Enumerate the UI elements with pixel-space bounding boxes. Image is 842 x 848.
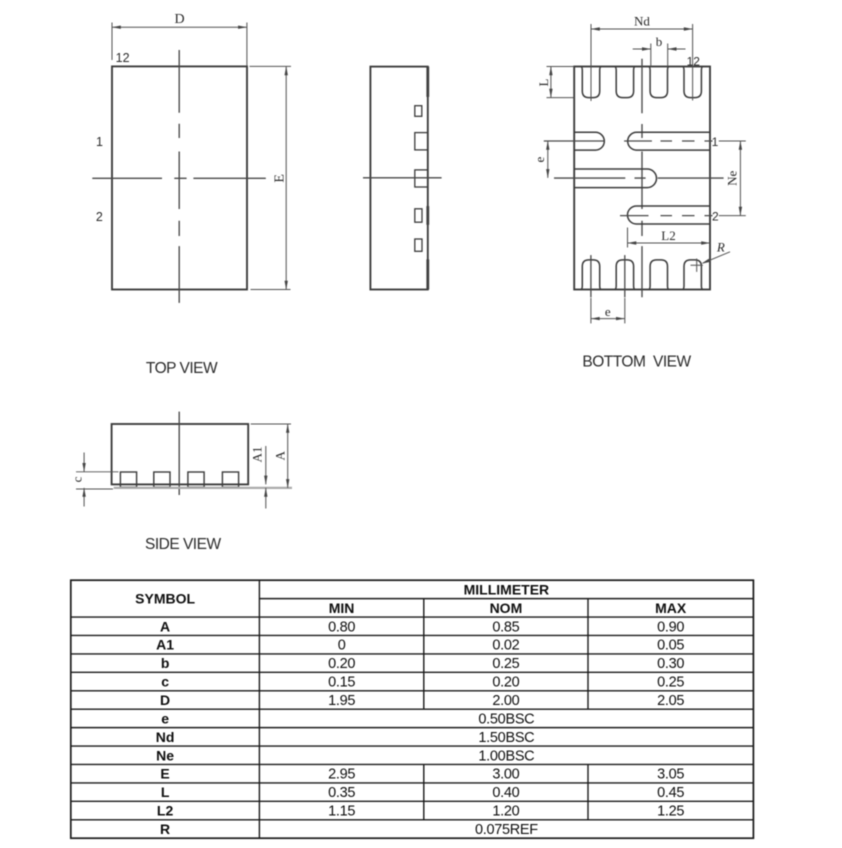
- svg-text:0.45: 0.45: [657, 785, 684, 801]
- svg-text:0.85: 0.85: [492, 619, 519, 635]
- svg-text:1.50BSC: 1.50BSC: [478, 730, 534, 746]
- svg-text:A1: A1: [250, 447, 265, 463]
- svg-text:A: A: [160, 618, 170, 634]
- svg-text:A1: A1: [156, 637, 174, 653]
- svg-text:0.50BSC: 0.50BSC: [478, 711, 534, 727]
- svg-text:1.25: 1.25: [657, 804, 684, 820]
- svg-text:0.20: 0.20: [492, 675, 519, 691]
- svg-text:0: 0: [338, 638, 346, 654]
- svg-text:0.075REF: 0.075REF: [475, 822, 538, 838]
- svg-text:Nd: Nd: [634, 13, 650, 28]
- svg-text:e: e: [161, 710, 169, 726]
- svg-text:1.00BSC: 1.00BSC: [478, 748, 534, 764]
- svg-text:3.05: 3.05: [657, 767, 684, 783]
- svg-text:MILLIMETER: MILLIMETER: [464, 581, 550, 597]
- svg-text:TOP VIEW: TOP VIEW: [146, 360, 218, 377]
- svg-text:2: 2: [96, 210, 103, 224]
- svg-text:Nd: Nd: [156, 729, 175, 745]
- svg-text:0.35: 0.35: [328, 785, 355, 801]
- svg-text:SYMBOL: SYMBOL: [135, 591, 195, 607]
- svg-text:0.25: 0.25: [657, 675, 684, 691]
- svg-text:2: 2: [712, 209, 719, 223]
- svg-text:Ne: Ne: [725, 170, 740, 185]
- svg-text:0.30: 0.30: [657, 656, 684, 672]
- svg-text:SIDE VIEW: SIDE VIEW: [145, 536, 221, 553]
- svg-text:3.00: 3.00: [492, 767, 519, 783]
- svg-text:c: c: [70, 476, 85, 482]
- svg-text:2.00: 2.00: [492, 693, 519, 709]
- svg-text:0.05: 0.05: [657, 638, 684, 654]
- svg-text:L: L: [536, 78, 551, 86]
- svg-text:Ne: Ne: [156, 747, 174, 763]
- svg-text:b: b: [161, 655, 170, 671]
- svg-text:0.02: 0.02: [492, 638, 519, 654]
- svg-text:0.15: 0.15: [328, 675, 355, 691]
- svg-text:A: A: [273, 450, 288, 460]
- svg-text:2.95: 2.95: [328, 767, 355, 783]
- svg-text:E: E: [273, 174, 288, 183]
- svg-text:0.40: 0.40: [492, 785, 519, 801]
- svg-text:0.90: 0.90: [657, 619, 684, 635]
- svg-text:0.80: 0.80: [328, 619, 355, 635]
- svg-text:R: R: [716, 240, 725, 255]
- svg-text:1: 1: [712, 135, 719, 149]
- svg-text:BOTTOM VIEW: BOTTOM VIEW: [582, 353, 691, 370]
- svg-text:2.05: 2.05: [657, 693, 684, 709]
- svg-text:E: E: [160, 766, 169, 782]
- svg-text:R: R: [160, 821, 170, 837]
- svg-text:0.25: 0.25: [492, 656, 519, 672]
- svg-text:e: e: [605, 304, 611, 319]
- svg-text:1.15: 1.15: [328, 804, 355, 820]
- svg-text:0.20: 0.20: [328, 656, 355, 672]
- svg-text:1.95: 1.95: [328, 693, 355, 709]
- svg-text:1.20: 1.20: [492, 804, 519, 820]
- svg-text:L: L: [161, 784, 170, 800]
- svg-text:L2: L2: [157, 803, 174, 819]
- svg-text:b: b: [656, 34, 663, 49]
- svg-text:12: 12: [116, 51, 130, 65]
- svg-text:NOM: NOM: [490, 600, 523, 616]
- svg-text:D: D: [174, 12, 184, 27]
- svg-text:12: 12: [687, 54, 701, 68]
- svg-text:e: e: [532, 156, 547, 162]
- svg-text:MAX: MAX: [655, 600, 687, 616]
- svg-text:c: c: [161, 674, 169, 690]
- svg-text:L2: L2: [661, 228, 675, 243]
- svg-text:1: 1: [96, 135, 103, 149]
- svg-text:MIN: MIN: [329, 600, 355, 616]
- svg-text:D: D: [160, 692, 170, 708]
